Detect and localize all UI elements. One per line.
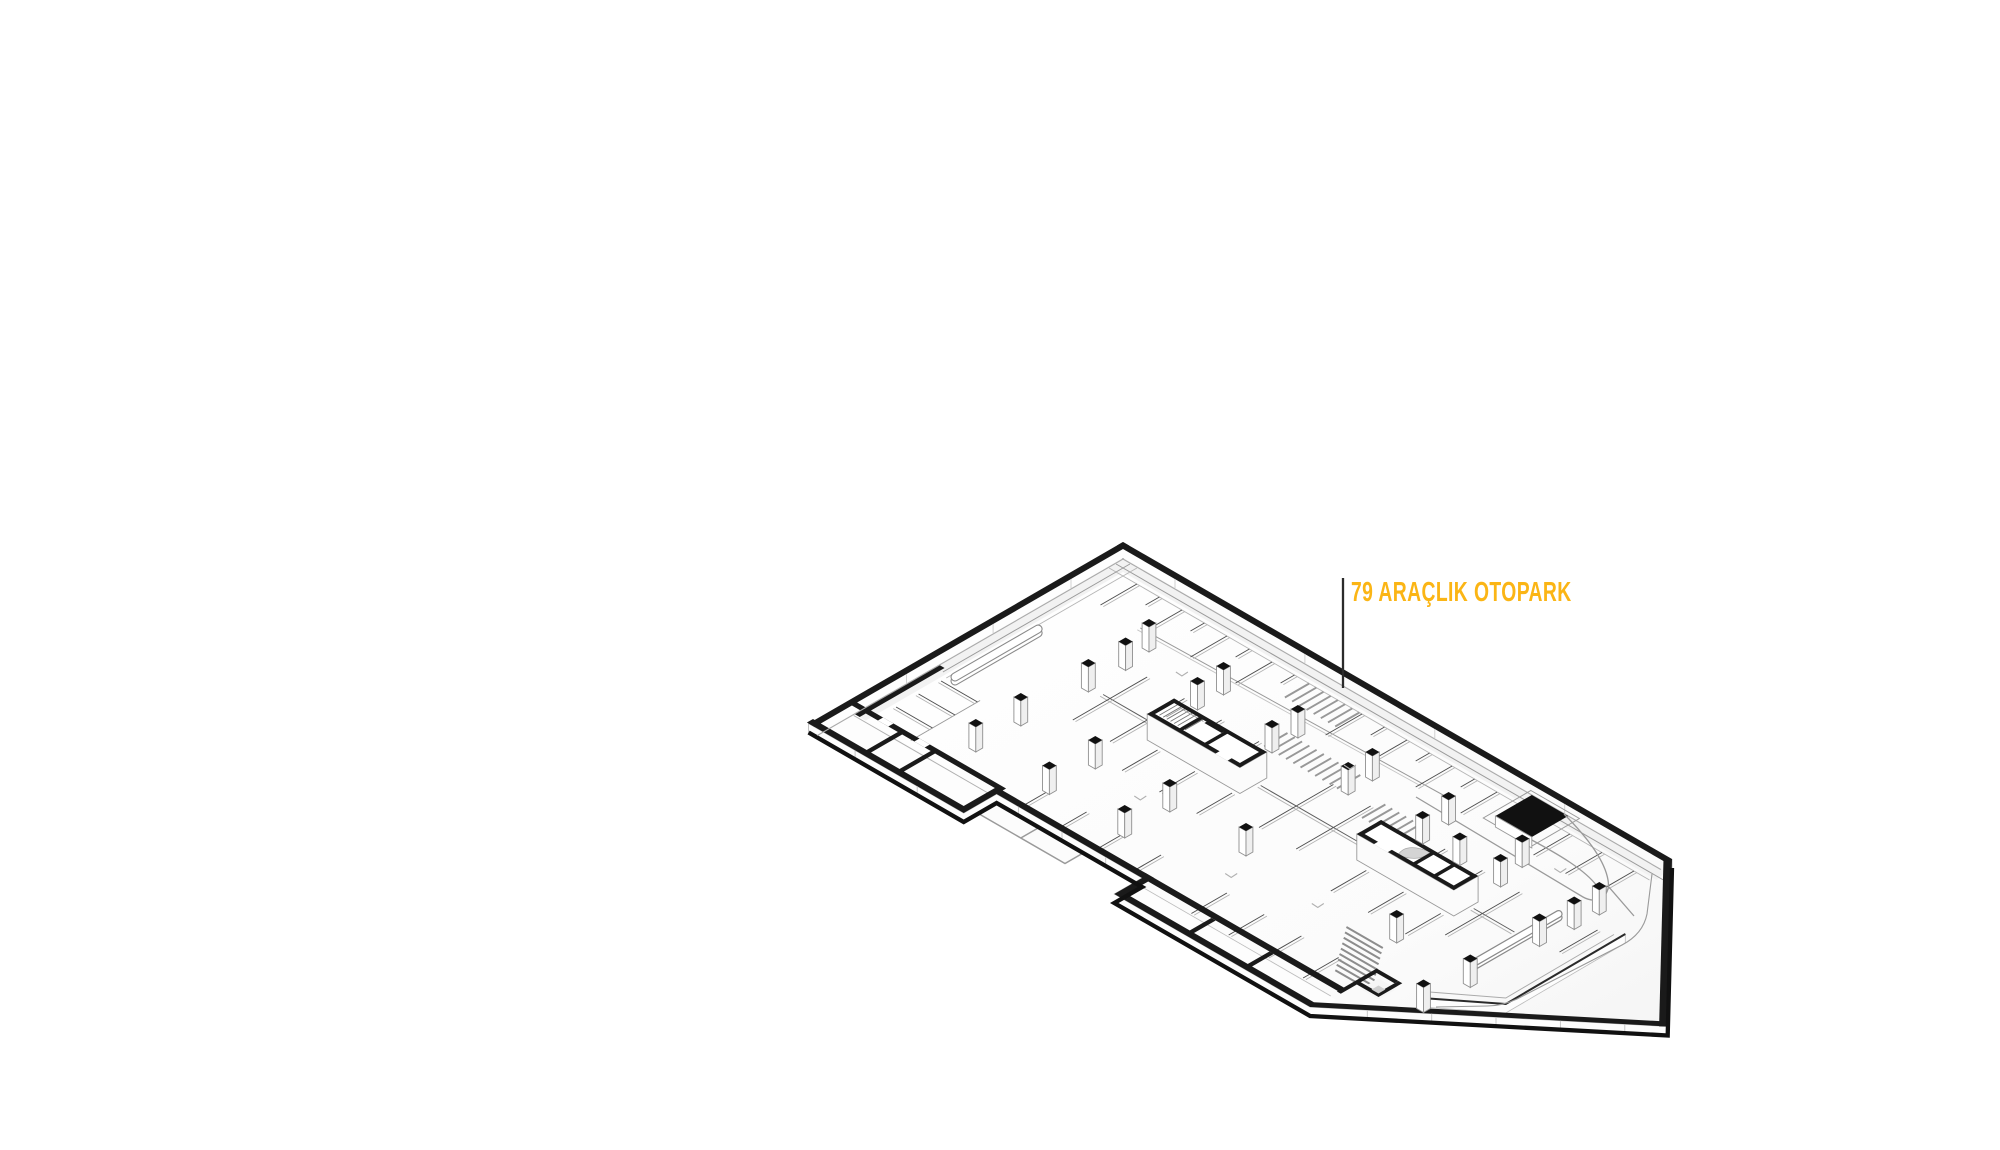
- svg-text:79 ARAÇLIK OTOPARK: 79 ARAÇLIK OTOPARK: [1351, 577, 1572, 608]
